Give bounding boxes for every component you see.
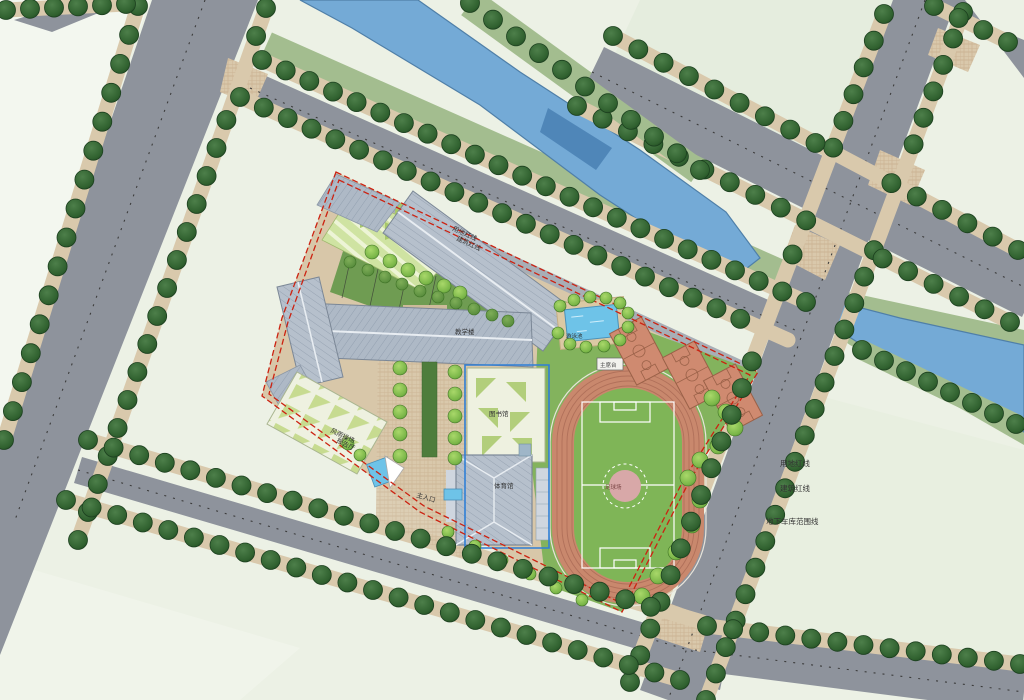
street-tree [442, 135, 461, 154]
street-tree [797, 211, 816, 230]
campus-tree [442, 526, 454, 538]
street-tree [629, 40, 648, 59]
street-tree [184, 528, 203, 547]
street-tree [540, 225, 559, 244]
campus-tree [614, 334, 626, 346]
street-tree [389, 588, 408, 607]
street-tree [828, 632, 847, 651]
campus-tree [393, 405, 407, 419]
street-tree [133, 513, 152, 532]
street-tree [925, 0, 944, 16]
campus-tree [704, 390, 720, 406]
legend-land-redline: 用地红线 [780, 458, 810, 468]
street-tree [82, 498, 101, 517]
street-tree [565, 575, 584, 594]
street-tree [882, 174, 901, 193]
label-teaching-building: 教学楼 [455, 327, 475, 336]
street-tree [773, 282, 792, 301]
street-tree [783, 245, 802, 264]
street-tree [66, 199, 85, 218]
street-tree [732, 379, 751, 398]
street-tree [261, 551, 280, 570]
street-tree [944, 29, 963, 48]
street-tree [924, 82, 943, 101]
label-sports-hall: 体育馆 [494, 481, 514, 490]
street-tree [350, 140, 369, 159]
street-tree [815, 373, 834, 392]
street-tree [781, 120, 800, 139]
campus-tree [614, 297, 626, 309]
campus-tree [344, 256, 356, 268]
label-football-field: 足球场 [605, 483, 622, 491]
street-tree [806, 134, 825, 153]
campus-tree [419, 271, 433, 285]
street-tree [722, 405, 741, 424]
street-tree [283, 491, 302, 510]
street-tree [210, 536, 229, 555]
street-tree [730, 93, 749, 112]
small-canopy [519, 444, 531, 456]
street-tree [513, 166, 532, 185]
campus-tree [448, 409, 462, 423]
street-tree [776, 626, 795, 645]
street-tree [854, 58, 873, 77]
street-tree [1001, 313, 1020, 332]
campus-tree [432, 291, 444, 303]
street-tree [312, 566, 331, 585]
street-tree [360, 514, 379, 533]
campus-tree [393, 383, 407, 397]
street-tree [3, 402, 22, 421]
campus-tree [383, 254, 397, 268]
street-tree [568, 641, 587, 660]
street-tree [69, 0, 88, 16]
street-tree [287, 558, 306, 577]
street-tree [326, 130, 345, 149]
street-tree [334, 506, 353, 525]
street-tree [999, 33, 1018, 52]
street-tree [440, 603, 459, 622]
street-tree [513, 559, 532, 578]
street-tree [159, 521, 178, 540]
street-tree [530, 44, 549, 63]
street-tree [607, 208, 626, 227]
street-tree [795, 426, 814, 445]
street-tree [489, 156, 508, 175]
street-tree [834, 111, 853, 130]
street-tree [924, 274, 943, 293]
campus-tree [379, 271, 391, 283]
street-tree [247, 27, 266, 46]
street-tree [985, 404, 1004, 423]
street-tree [655, 229, 674, 248]
street-tree [507, 27, 526, 46]
street-tree [619, 656, 638, 675]
street-tree [79, 431, 98, 450]
street-tree [590, 582, 609, 601]
street-tree [560, 187, 579, 206]
campus-tree [486, 309, 498, 321]
hedge-strip [422, 362, 437, 457]
street-tree [612, 257, 631, 276]
street-tree [691, 161, 710, 180]
street-tree [899, 262, 918, 281]
street-tree [418, 124, 437, 143]
street-tree [69, 531, 88, 550]
street-tree [120, 25, 139, 44]
street-tree [102, 83, 121, 102]
street-tree [93, 0, 112, 15]
street-tree [984, 651, 1003, 670]
street-tree [374, 151, 393, 170]
street-tree [802, 629, 821, 648]
campus-tree [580, 341, 592, 353]
street-tree [517, 626, 536, 645]
campus-tree [680, 470, 696, 486]
street-tree [958, 648, 977, 667]
street-tree [484, 10, 503, 29]
street-tree [682, 512, 701, 531]
site-plan-map: 用地红线 建筑红线 教学楼 风雨操场 报告厅 图书馆 体育馆 主入口 游泳池 主… [0, 0, 1024, 700]
street-tree [671, 671, 690, 690]
street-tree [539, 567, 558, 586]
street-tree [187, 195, 206, 214]
street-tree [853, 341, 872, 360]
street-tree [130, 446, 149, 465]
street-tree [875, 5, 894, 24]
street-tree [45, 0, 64, 17]
street-tree [445, 183, 464, 202]
street-tree [300, 72, 319, 91]
street-tree [671, 539, 690, 558]
street-tree [88, 475, 107, 494]
entrance-pond-2 [444, 489, 462, 500]
campus-tree [448, 365, 462, 379]
street-tree [712, 432, 731, 451]
street-tree [421, 172, 440, 191]
street-tree [364, 581, 383, 600]
street-tree [750, 623, 769, 642]
street-tree [949, 9, 968, 28]
street-tree [636, 267, 655, 286]
street-tree [177, 223, 196, 242]
street-tree [48, 257, 67, 276]
street-tree [466, 611, 485, 630]
street-tree [645, 663, 664, 682]
street-tree [324, 82, 343, 101]
label-pool: 游泳池 [566, 332, 583, 340]
street-tree [906, 642, 925, 661]
street-tree [347, 93, 366, 112]
street-tree [659, 278, 678, 297]
street-tree [622, 110, 641, 129]
street-tree [933, 200, 952, 219]
campus-tree [354, 449, 366, 461]
street-tree [118, 391, 137, 410]
street-tree [415, 596, 434, 615]
street-tree [309, 499, 328, 518]
street-tree [236, 543, 255, 562]
street-tree [855, 267, 874, 286]
campus-tree [393, 361, 407, 375]
street-tree [276, 61, 295, 80]
street-tree [907, 187, 926, 206]
street-tree [702, 459, 721, 478]
street-tree [641, 619, 660, 638]
campus-tree [598, 340, 610, 352]
street-tree [584, 198, 603, 217]
street-tree [197, 167, 216, 186]
campus-tree [502, 315, 514, 327]
street-tree [104, 438, 123, 457]
street-tree [232, 476, 251, 495]
street-tree [731, 309, 750, 328]
campus-tree [448, 431, 462, 445]
street-tree [257, 0, 276, 18]
street-tree [683, 288, 702, 307]
campus-tree [414, 285, 426, 297]
street-tree [771, 198, 790, 217]
legend-garage-extent: 地下车库范围线 [766, 516, 819, 526]
street-tree [278, 109, 297, 128]
campus-tree [448, 451, 462, 465]
campus-tree [362, 264, 374, 276]
street-tree [338, 573, 357, 592]
campus-tree [568, 294, 580, 306]
street-tree [217, 111, 236, 130]
street-tree [57, 228, 76, 247]
street-tree [397, 162, 416, 181]
campus-tree [576, 594, 588, 606]
street-tree [805, 399, 824, 418]
campus-tree [584, 291, 596, 303]
street-tree [258, 484, 277, 503]
street-tree [854, 636, 873, 655]
street-tree [167, 251, 186, 270]
street-tree [21, 0, 40, 18]
street-tree [1009, 241, 1024, 260]
street-tree [57, 491, 76, 510]
street-tree [621, 673, 640, 692]
street-tree [564, 235, 583, 254]
street-tree [983, 227, 1002, 246]
street-tree [469, 193, 488, 212]
legend-building-redline: 建筑红线 [780, 483, 810, 493]
street-tree [465, 145, 484, 164]
street-tree [0, 1, 16, 20]
street-tree [437, 537, 456, 556]
street-tree [873, 249, 892, 268]
street-tree [736, 585, 755, 604]
street-tree [864, 31, 883, 50]
street-tree [941, 383, 960, 402]
street-tree [692, 486, 711, 505]
street-tree [668, 144, 687, 163]
street-tree [963, 393, 982, 412]
street-tree [654, 53, 673, 72]
street-tree [594, 648, 613, 667]
campus-tree [393, 449, 407, 463]
street-tree [111, 54, 130, 73]
street-tree [138, 335, 157, 354]
street-tree [553, 60, 572, 79]
street-tree [746, 558, 765, 577]
street-tree [155, 453, 174, 472]
street-tree [724, 620, 743, 639]
campus-tree [401, 263, 415, 277]
street-tree [207, 139, 226, 158]
street-tree [588, 246, 607, 265]
street-tree [679, 67, 698, 86]
street-tree [84, 141, 103, 160]
street-tree [599, 94, 618, 113]
campus-tree [552, 327, 564, 339]
street-tree [604, 27, 623, 46]
street-tree [645, 127, 664, 146]
street-tree [707, 299, 726, 318]
street-tree [698, 617, 717, 636]
street-tree [897, 362, 916, 381]
street-tree [749, 272, 768, 291]
street-tree [12, 373, 31, 392]
campus-tree [393, 427, 407, 441]
label-podium: 主席台 [600, 361, 617, 369]
campus-tree [468, 303, 480, 315]
street-tree [1007, 415, 1024, 434]
street-tree [371, 103, 390, 122]
street-tree [30, 315, 49, 334]
street-tree [934, 55, 953, 74]
street-tree [716, 638, 735, 657]
street-tree [39, 286, 58, 305]
street-tree [75, 170, 94, 189]
street-tree [493, 204, 512, 223]
street-tree [231, 88, 250, 107]
street-tree [616, 590, 635, 609]
street-tree [148, 307, 167, 326]
street-tree [181, 461, 200, 480]
campus-tree [622, 307, 634, 319]
street-tree [835, 320, 854, 339]
street-tree [128, 363, 147, 382]
campus-tree [448, 387, 462, 401]
street-tree [93, 112, 112, 131]
street-tree [678, 240, 697, 259]
street-tree [797, 293, 816, 312]
street-tree [516, 214, 535, 233]
street-tree [919, 372, 938, 391]
campus-tree [622, 321, 634, 333]
campus-tree [554, 300, 566, 312]
street-tree [543, 633, 562, 652]
street-tree [108, 506, 127, 525]
street-tree [21, 344, 40, 363]
street-tree [661, 566, 680, 585]
label-library: 图书馆 [489, 409, 509, 418]
street-tree [641, 597, 660, 616]
street-tree [302, 119, 321, 138]
street-tree [411, 529, 430, 548]
street-tree [932, 645, 951, 664]
campus-tree [450, 297, 462, 309]
campus-tree [396, 278, 408, 290]
street-tree [904, 135, 923, 154]
street-tree [756, 532, 775, 551]
street-tree [394, 114, 413, 133]
street-tree [536, 177, 555, 196]
street-tree [158, 279, 177, 298]
street-tree [824, 138, 843, 157]
street-tree [568, 97, 587, 116]
street-tree [386, 522, 405, 541]
street-tree [462, 544, 481, 563]
street-tree [958, 214, 977, 233]
street-tree [875, 351, 894, 370]
street-tree [706, 664, 725, 683]
street-tree [975, 300, 994, 319]
street-tree [726, 261, 745, 280]
campus-tree [365, 245, 379, 259]
street-tree [488, 552, 507, 571]
street-tree [845, 294, 864, 313]
street-tree [206, 468, 225, 487]
street-tree [825, 347, 844, 366]
street-tree [491, 618, 510, 637]
campus-tree [600, 292, 612, 304]
street-tree [746, 185, 765, 204]
street-tree [742, 352, 761, 371]
street-tree [254, 98, 273, 117]
street-tree [631, 219, 650, 238]
street-tree [720, 173, 739, 192]
street-tree [253, 51, 272, 70]
street-tree [914, 108, 933, 127]
street-tree [108, 419, 127, 438]
street-tree [844, 85, 863, 104]
street-tree [880, 639, 899, 658]
street-tree [702, 250, 721, 269]
street-tree [974, 21, 993, 40]
street-tree [755, 107, 774, 126]
street-tree [950, 287, 969, 306]
street-tree [576, 77, 595, 96]
street-tree [705, 80, 724, 99]
